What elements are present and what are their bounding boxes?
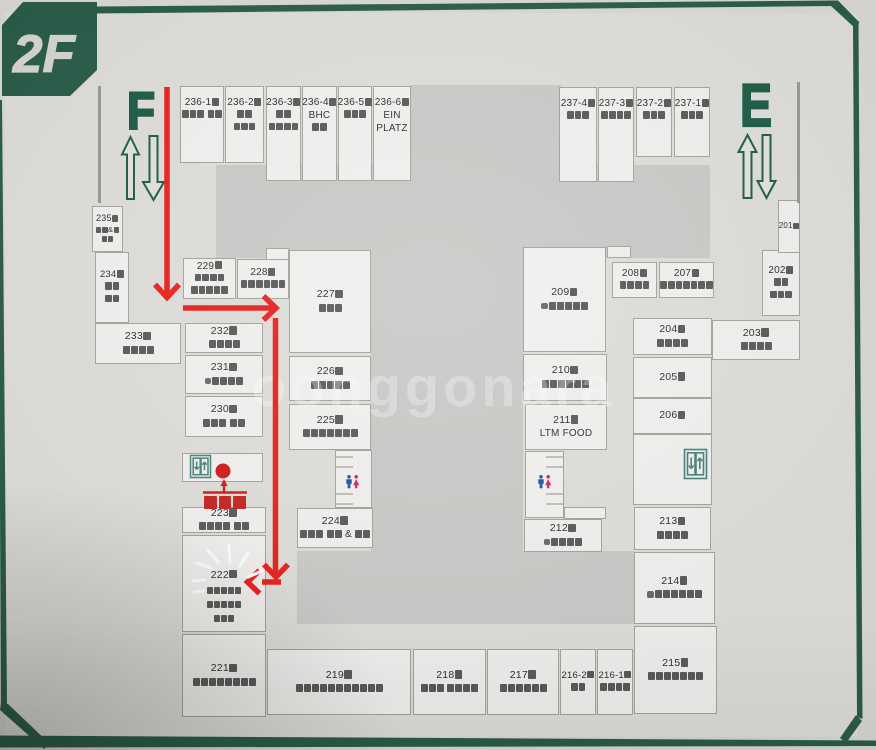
svg-text:2F: 2F bbox=[12, 25, 76, 84]
svg-text:oonggonara: oonggonara bbox=[252, 355, 616, 418]
svg-text:F: F bbox=[127, 83, 155, 141]
svg-text:E: E bbox=[740, 72, 772, 139]
